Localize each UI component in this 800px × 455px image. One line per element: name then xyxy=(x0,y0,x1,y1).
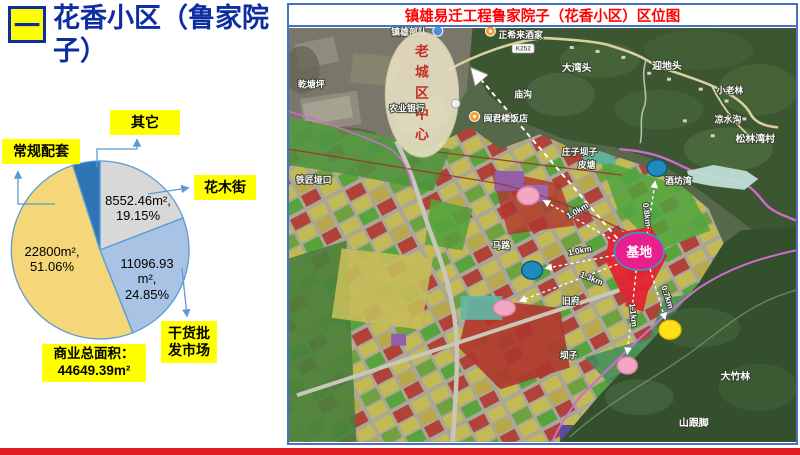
total-area-value: 44649.39m² xyxy=(54,363,135,380)
blue-circle-north xyxy=(647,160,667,177)
map-label: 农业银行 xyxy=(388,102,425,113)
slide: 一 花香小区（鲁家院子） 其它 常规配套 花木街 干货批发市场 商业总面积： 4… xyxy=(0,0,800,455)
map-label: 松林湾村 xyxy=(735,132,775,145)
map-label: 旧府 xyxy=(562,295,580,306)
old-town-center-char: 心 xyxy=(415,126,429,142)
total-area-label: 商业总面积： xyxy=(54,346,135,363)
map-label: 马路 xyxy=(492,239,510,250)
base-label: 基地 xyxy=(625,244,652,259)
map-label: 铁匠垭口 xyxy=(296,174,332,185)
pink-circle-south xyxy=(617,357,637,374)
map-label: 酒坊湾 xyxy=(665,175,692,186)
hotel-marker-dot xyxy=(473,115,476,118)
map-label: 迎地头 xyxy=(652,59,682,72)
map-label: 闽君楼饭店 xyxy=(483,112,528,123)
map-label: 小老林 xyxy=(716,85,744,96)
map-label: 大湾头 xyxy=(562,61,592,74)
pink-circle-southwest xyxy=(493,300,515,316)
map-label: 皮塘 xyxy=(577,159,596,170)
slice-label-changgui: 22800m², 51.06% xyxy=(6,244,98,275)
location-map: 镇雄部队 老城区中心 0.8km 1.0km 1.0km 1.3km 1.1km… xyxy=(289,27,796,443)
map-label: 庄子坝子 xyxy=(562,146,598,157)
map-label: 凉水沟 xyxy=(715,113,742,124)
old-town-center-char: 区 xyxy=(415,85,429,101)
map-label: 乾塘坪 xyxy=(298,79,325,90)
blue-poi-icon xyxy=(433,27,443,36)
callout-qita: 其它 xyxy=(110,110,180,135)
callout-huamujie: 花木街 xyxy=(194,175,256,200)
map-label: 庙沟 xyxy=(514,89,532,100)
map-title: 镇雄易迁工程鲁家院子（花香小区）区位图 xyxy=(289,5,796,27)
map-label: 大竹林 xyxy=(721,369,751,382)
map-label: 山跟脚 xyxy=(679,416,709,429)
callout-ganhuo: 干货批发市场 xyxy=(161,321,217,363)
old-town-center-label: 老城区中心 xyxy=(415,43,429,142)
total-area-box: 商业总面积： 44649.39m² xyxy=(42,344,146,382)
callout-changgui: 常规配套 xyxy=(2,139,80,164)
base-marker: 基地 xyxy=(614,233,664,271)
restaurant-marker-dot xyxy=(489,29,492,32)
old-town-center-char: 老 xyxy=(415,43,429,59)
location-map-panel: 镇雄易迁工程鲁家院子（花香小区）区位图 xyxy=(287,3,798,445)
bank-marker-icon xyxy=(451,99,460,108)
slice-label-huamujie: 8552.46m², 19.15% xyxy=(92,193,184,224)
blue-circle-west xyxy=(522,261,543,279)
map-label: 坝子 xyxy=(560,350,578,361)
yellow-circle-southeast xyxy=(659,320,681,339)
map-label: 正希来酒家 xyxy=(498,29,543,40)
slide-bottom-bar xyxy=(0,448,800,455)
old-town-center-char: 城 xyxy=(415,64,429,80)
pie-chart xyxy=(0,0,287,455)
slice-label-ganhuo: 11096.93 m², 24.85% xyxy=(114,256,180,302)
road-badge-label: K252 xyxy=(515,45,531,52)
pink-circle-northwest xyxy=(517,187,539,205)
